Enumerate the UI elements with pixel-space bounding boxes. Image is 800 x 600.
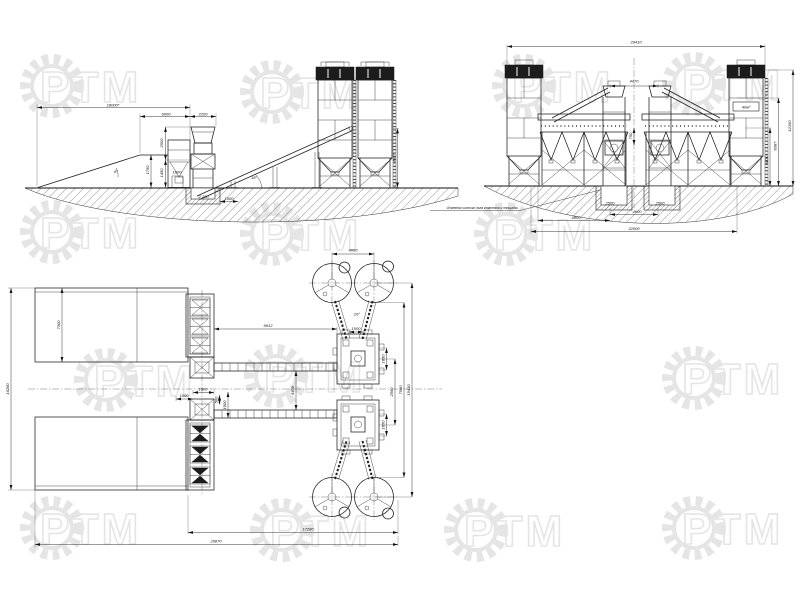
dim-plan-f4: 1500 [222,400,227,410]
dim-front-offset: 6800 [572,215,582,220]
dim-plan-screw-angle: 26° [353,312,360,317]
dim-side-overall: 18000* [107,102,120,107]
dim-front-pit-l: 2500 [605,201,616,206]
dim-side-pit-level: -2.200 [197,194,209,199]
mixer-tower-right [649,81,671,186]
dim-front-h2: 8387 [773,141,778,151]
dim-front-overall: 29410 [629,40,642,45]
dim-side-silo-h: 4387 [392,153,397,163]
mixer-plan-lower [333,396,384,454]
dim-front-center-gap: 750 [628,132,633,139]
dim-side-bins: 6000 [162,111,172,116]
dim-plan-r1: 7580 [398,385,403,395]
dim-side-h2: 1450 [159,168,164,178]
plan-conveyor-lower [214,410,337,418]
dim-plan-f3: 500 [214,396,219,403]
dim-front-base: 22000 [627,226,640,231]
dim-plan-bin-h: 7300 [56,320,61,330]
batching-plant-drawing: РТМ [0,0,800,600]
dim-side-chute: 1000 [173,170,183,175]
dim-front-towers-cc: 4470 [630,79,640,84]
aggregate-bins-right [642,114,734,185]
note-text: Отметка чистого пола комплекса и площадк… [447,206,519,210]
aggregate-storage-lower [35,417,188,490]
dim-side-ramp-angle: 8° [114,169,118,174]
dim-side-h3: 1750 [145,165,150,175]
dim-plan-m2: 1850 [381,420,386,430]
dim-front-pits-cc: 4600 [633,209,643,214]
feeder-strip-lower [186,399,214,490]
dim-side-belt-angle: 18° [251,175,257,180]
receiving-hopper [168,140,190,188]
dim-front-h3: 12150 [787,120,792,132]
aggregate-bins-left [538,114,630,185]
dim-side-h1: 2500 [159,138,164,149]
discharge-chute [172,176,183,188]
dim-front-h1: 6030 [764,155,769,165]
dim-plan-f1: 1500 [199,387,209,392]
dim-plan-r2: 15430 [406,384,411,396]
feeder-strip-upper [186,294,214,378]
dim-side-mixer: 2200 [198,111,209,116]
dim-plan-silos-cc: 4000 [349,248,359,253]
dim-plan-m1: 1850 [381,354,386,364]
dim-plan-b2: 29870 [209,539,222,544]
dim-plan-screw-cc: 1500 [352,326,362,331]
dim-plan-belt-len: 9912 [264,323,274,328]
dim-side-pit-w: 1500 [225,196,235,201]
dim-plan-f2: 1000 [180,393,190,398]
dim-plan-mixers-cc: 2560 [389,387,394,398]
dim-front-pit-r: 2500 [655,201,666,206]
drawing-canvas: РТМ [0,0,800,600]
dim-plan-belts-cc: 4400 [290,385,295,395]
mixer-tower [172,127,215,188]
dim-plan-b1: 17280 [302,527,314,532]
silo-volume-label: 40м³ [742,104,751,109]
dim-plan-left-h: 16280 [5,383,10,395]
